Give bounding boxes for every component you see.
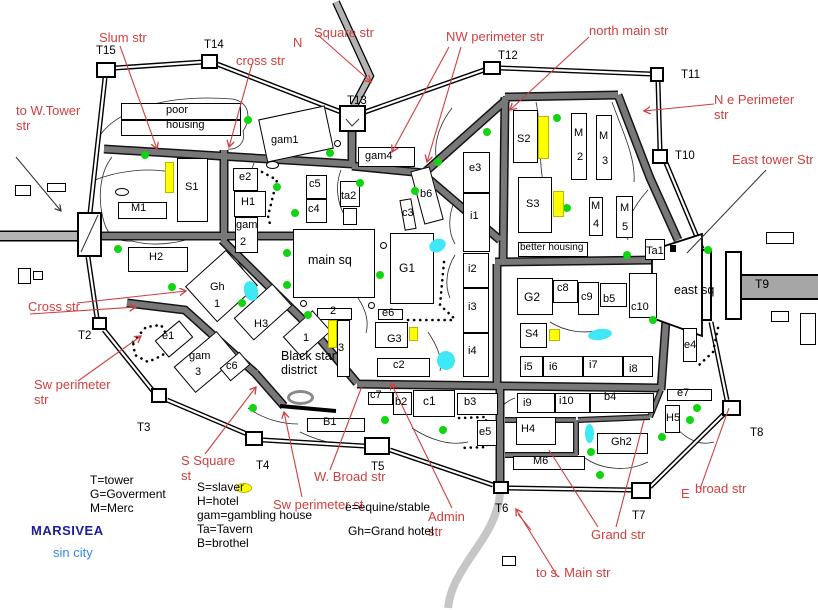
tree-dot bbox=[439, 426, 447, 434]
marker-yellow bbox=[165, 162, 174, 193]
tree-dot bbox=[623, 251, 631, 259]
marker-yellow bbox=[328, 320, 337, 348]
marker-yellow bbox=[538, 116, 549, 159]
city-map: poorhousingS1M1H2e2H1gam2c5c4ta2gam1gam4… bbox=[0, 0, 818, 610]
tree-dot bbox=[356, 179, 364, 187]
marker-yellow bbox=[236, 483, 252, 493]
tree-dot bbox=[238, 299, 246, 307]
tree-dot bbox=[686, 416, 694, 424]
small-circle bbox=[380, 242, 387, 249]
tree-dot bbox=[434, 158, 442, 166]
tree-dot bbox=[249, 404, 257, 412]
tree-dot bbox=[291, 209, 299, 217]
pond bbox=[427, 236, 448, 255]
small-circle bbox=[368, 302, 375, 309]
tree-dot bbox=[141, 151, 149, 159]
tree-dot bbox=[376, 271, 384, 279]
tree-dot bbox=[114, 245, 122, 253]
tree-dot bbox=[168, 283, 176, 291]
tree-dot bbox=[658, 433, 666, 441]
tree-dot bbox=[244, 116, 252, 124]
tree-dot bbox=[553, 114, 561, 122]
tree-dot bbox=[596, 471, 604, 479]
tree-dot bbox=[326, 149, 334, 157]
tree-dot bbox=[411, 187, 419, 195]
small-oval bbox=[266, 161, 279, 169]
pond bbox=[585, 424, 594, 443]
post-square bbox=[670, 245, 676, 252]
pond bbox=[437, 351, 455, 370]
tree-dot bbox=[563, 204, 571, 212]
small-circle bbox=[334, 140, 341, 147]
marker-yellow bbox=[409, 327, 418, 341]
tree-dot bbox=[381, 416, 389, 424]
tree-dot bbox=[693, 404, 701, 412]
marks-layer bbox=[0, 0, 818, 610]
small-oval bbox=[115, 188, 129, 196]
pond bbox=[587, 327, 612, 341]
marker-yellow bbox=[553, 191, 564, 217]
marker-yellow bbox=[549, 329, 560, 341]
tree-dot bbox=[304, 311, 312, 319]
tree-dot bbox=[283, 249, 291, 257]
small-circle bbox=[300, 300, 307, 307]
tree-dot bbox=[704, 246, 712, 254]
tree-dot bbox=[283, 281, 291, 289]
tree-dot bbox=[587, 448, 595, 456]
tree-dot bbox=[483, 128, 491, 136]
tree-dot bbox=[273, 183, 281, 191]
gray-oval bbox=[287, 390, 314, 405]
tree-dot bbox=[649, 316, 657, 324]
